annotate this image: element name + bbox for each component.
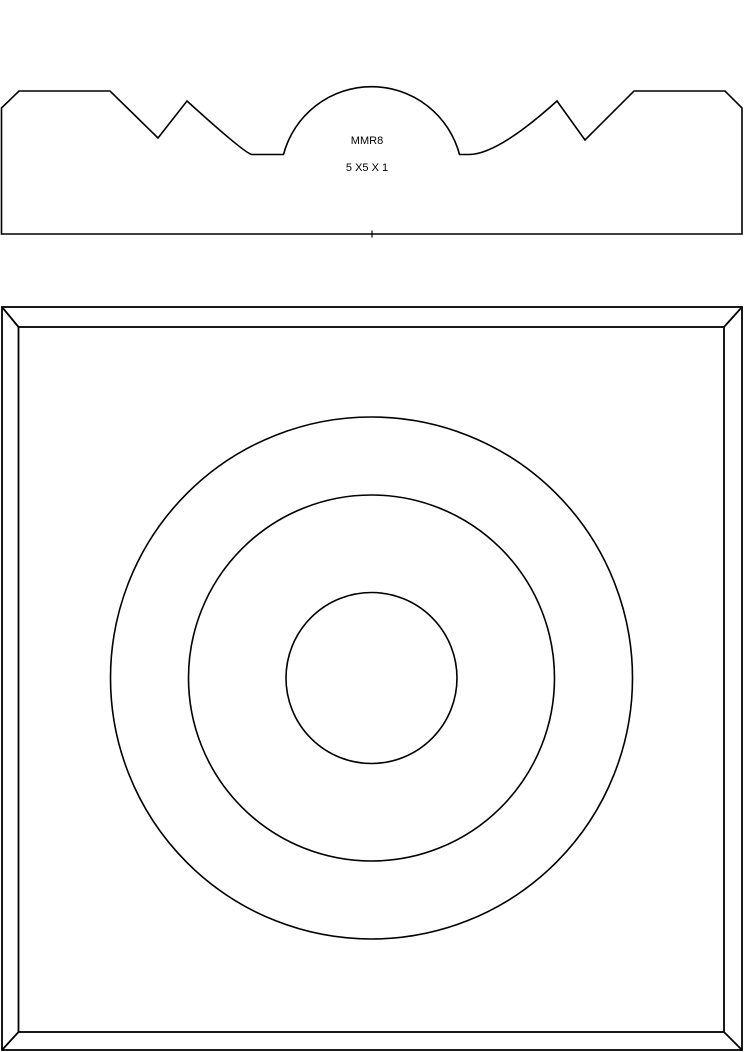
miter-line-top-left	[2, 307, 19, 327]
miter-line-bottom-right	[724, 1032, 742, 1050]
miter-line-top-right	[724, 307, 742, 327]
rosette-plan-view	[2, 307, 742, 1050]
profile-cross-section: MMR8 5 X5 X 1	[2, 87, 743, 238]
rosette-circle-inner	[286, 593, 457, 764]
rosette-inner-square	[19, 327, 725, 1032]
profile-size-label: 5 X5 X 1	[346, 162, 388, 174]
rosette-circle-middle	[189, 495, 555, 861]
drawing-page: MMR8 5 X5 X 1	[0, 0, 744, 1052]
technical-drawing-canvas: MMR8 5 X5 X 1	[0, 0, 744, 1052]
profile-code-label: MMR8	[351, 135, 383, 147]
molding-profile-outline	[2, 87, 743, 234]
miter-line-bottom-left	[2, 1032, 19, 1050]
